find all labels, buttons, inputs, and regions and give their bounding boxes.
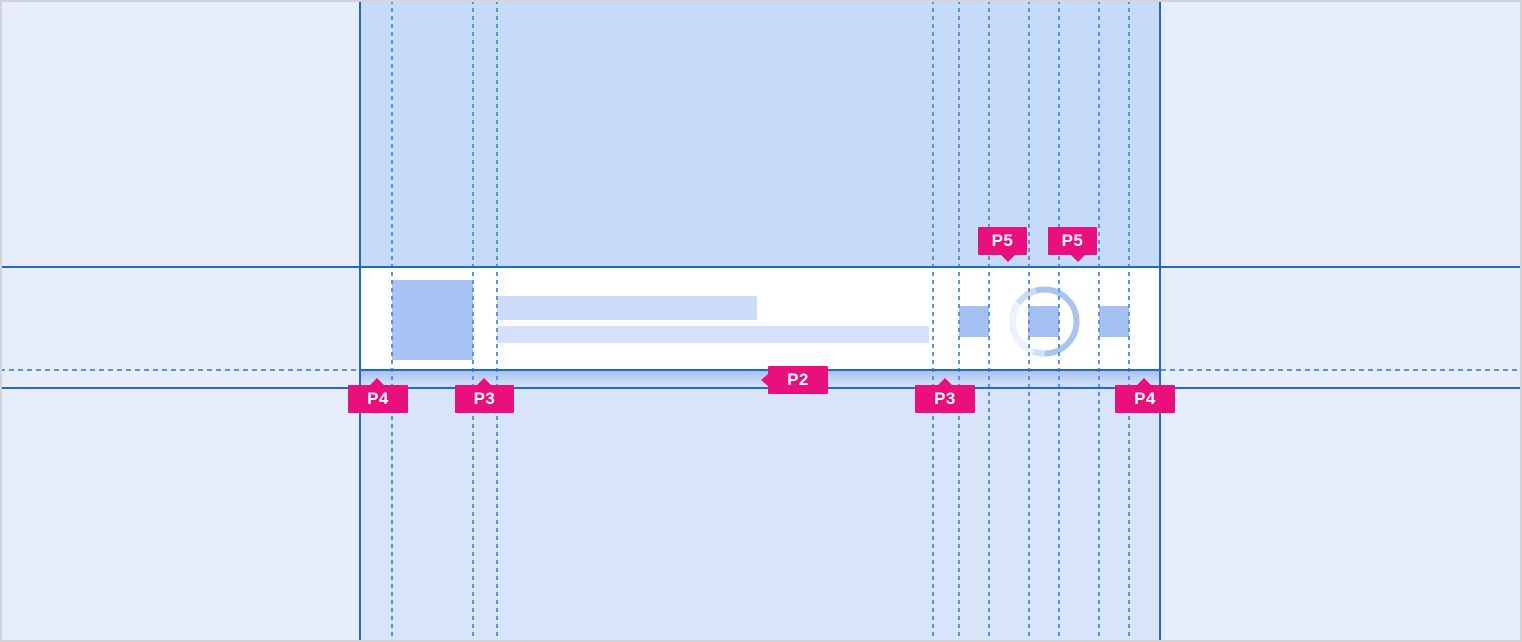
padding-badge-p3-left-caret: [477, 378, 491, 385]
padding-badge-p4-right-caret: [1137, 378, 1151, 385]
guide-dashed-row-bottom-left: [0, 369, 359, 371]
guide-action3-left: [1098, 0, 1100, 642]
spinner-ring-icon: [1009, 286, 1080, 357]
guide-text-start: [496, 0, 498, 642]
title-text-placeholder: [497, 296, 757, 320]
padding-badge-p4-right: P4: [1115, 385, 1175, 413]
padding-badge-p4-left-caret: [370, 378, 384, 385]
guide-dashed-row-bottom-right: [1161, 369, 1522, 371]
guide-avatar-left: [391, 0, 393, 642]
padding-badge-p3-right: P3: [915, 385, 975, 413]
subtitle-text-placeholder: [497, 326, 929, 343]
guide-action1-right: [988, 0, 990, 642]
padding-badge-p3-left: P3: [455, 385, 514, 413]
guide-line-container-left: [359, 0, 361, 642]
padding-badge-p5-right-caret: [1071, 255, 1085, 262]
guide-action1-left: [958, 0, 960, 642]
content-band-below-row: [360, 389, 1160, 642]
padding-badge-p5-left-caret: [1001, 255, 1015, 262]
action-icon-placeholder-1: [959, 306, 989, 337]
guide-line-container-right: [1159, 0, 1161, 642]
guide-text-end: [932, 0, 934, 642]
padding-badge-p2: P2: [768, 366, 828, 394]
guide-action2-right: [1058, 0, 1060, 642]
guide-line-baseline: [0, 387, 1522, 389]
guide-avatar-right: [472, 0, 474, 642]
avatar-placeholder: [392, 280, 473, 360]
padding-badge-p3-right-caret: [938, 378, 952, 385]
guide-line-row-top: [0, 266, 1522, 268]
content-band-above-row: [360, 0, 1160, 267]
guide-action2-left: [1028, 0, 1030, 642]
padding-badge-p2-caret: [761, 374, 768, 386]
action-icon-placeholder-3: [1099, 306, 1129, 337]
guide-action3-right: [1128, 0, 1130, 642]
padding-badge-p5-right: P5: [1048, 227, 1097, 255]
spec-canvas: P5 P5 P2 P4 P3 P3 P4: [0, 0, 1522, 642]
padding-badge-p5-left: P5: [978, 227, 1027, 255]
padding-badge-p4-left: P4: [348, 385, 408, 413]
guide-line-row-bottom: [360, 369, 1160, 371]
